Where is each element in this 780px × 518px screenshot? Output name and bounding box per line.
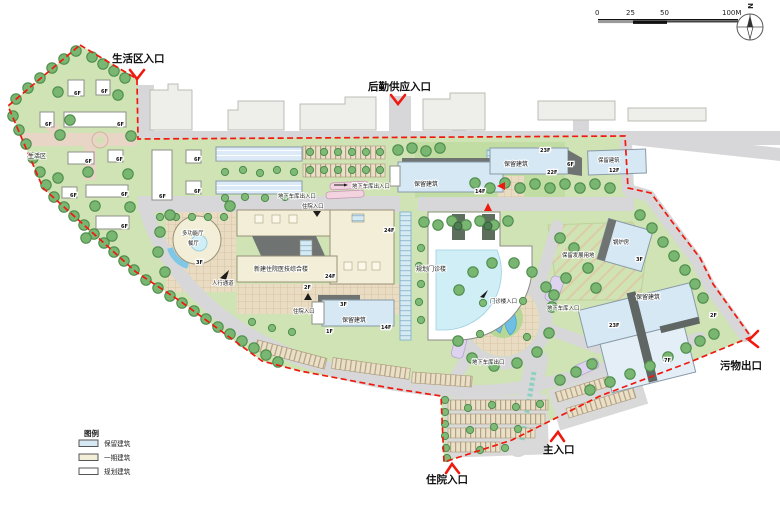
label-retained-23f-top: 保留建筑 [504,160,528,168]
label-inpatient-entry-north: 住院入口 [302,202,324,210]
svg-text:6F: 6F [194,157,201,163]
label-garage-in: 地下车库入口 [547,304,579,312]
svg-text:6F: 6F [194,189,201,195]
label-retained-14f: 保留建筑 [414,180,438,188]
svg-text:14F: 14F [475,189,485,195]
label-new-inpatient: 新建住院医技综合楼 [254,265,308,273]
svg-text:6F: 6F [121,192,128,198]
svg-text:22F: 22F [547,170,557,176]
svg-text:0: 0 [595,9,599,17]
svg-text:6F: 6F [121,224,128,230]
label-main-entrance: 主入口 [543,443,575,456]
label-outpatient-entry: 门诊楼入口 [490,297,517,305]
legend-label-retained: 保留建筑 [104,439,131,448]
label-reserved-land: 保留发展用地 [562,251,595,259]
svg-text:6F: 6F [74,91,81,97]
label-inpatient-entrance: 住院入口 [426,473,468,486]
label-waste-exit: 污物出口 [720,359,762,372]
legend-title: 图例 [84,428,99,438]
svg-text:6F: 6F [567,162,574,168]
label-retained-23f-se: 保留建筑 [636,293,660,301]
legend-label-planned: 规划建筑 [104,467,131,476]
svg-text:6F: 6F [101,89,108,95]
label-inpatient-entry-south: 住院入口 [293,307,315,315]
svg-text:24F: 24F [384,228,394,234]
label-planned-outpatient: 规划门诊楼 [416,265,446,273]
svg-text:6F: 6F [70,193,77,199]
svg-text:1F: 1F [326,329,333,335]
svg-text:6F: 6F [45,122,52,128]
scale-bar: 0 25 50 100M [595,9,741,24]
svg-text:23F: 23F [540,148,550,154]
legend: 图例 保留建筑 一期建筑 规划建筑 [79,428,131,476]
svg-text:50: 50 [660,9,669,17]
legend-swatch-planned [79,468,98,475]
label-boiler-house: 锅炉房 [613,238,629,246]
svg-text:6F: 6F [117,122,124,128]
svg-text:25: 25 [626,9,635,17]
label-garage-out: 地下车库出口 [472,358,504,366]
label-pedestrian-walk: 人行通道 [212,279,234,287]
svg-text:3F: 3F [636,257,643,263]
label-multifunction-1: 多功能厅 [182,229,204,237]
site-plan: 生活区入口 后勤供应入口 污物出口 主入口 住院入口 生活区 多功能厅 餐厅 新… [0,0,780,518]
label-living-area: 生活区 [28,152,46,160]
svg-text:24F: 24F [325,274,335,280]
label-garage-inout-1: 地下车库出入口 [352,182,390,190]
label-multifunction-2: 餐厅 [188,239,199,247]
svg-text:12F: 12F [609,168,619,174]
legend-label-phase1: 一期建筑 [104,453,131,462]
legend-swatch-retained [79,440,98,447]
svg-text:7F: 7F [664,358,671,364]
svg-text:100M: 100M [722,9,741,17]
label-retained-14f-south: 保留建筑 [342,316,366,324]
svg-text:23F: 23F [609,323,619,329]
label-garage-inout-2: 地下车库出入口 [278,192,316,200]
svg-text:3F: 3F [196,260,203,266]
site-plan-drawing: 生活区入口 后勤供应入口 污物出口 主入口 住院入口 生活区 多功能厅 餐厅 新… [0,0,780,518]
svg-text:6F: 6F [85,159,92,165]
svg-text:6F: 6F [116,157,123,163]
label-logistics-entrance: 后勤供应入口 [368,80,431,93]
svg-text:2F: 2F [710,313,717,319]
svg-text:3F: 3F [340,302,347,308]
svg-text:2F: 2F [304,285,311,291]
label-retained-12f: 保留建筑 [598,156,620,164]
label-living-entrance: 生活区入口 [112,52,165,65]
north-label: N [746,3,754,9]
svg-text:14F: 14F [381,325,391,331]
svg-text:6F: 6F [159,194,166,200]
legend-swatch-phase1 [79,454,98,461]
multifunction-hall [173,216,221,264]
